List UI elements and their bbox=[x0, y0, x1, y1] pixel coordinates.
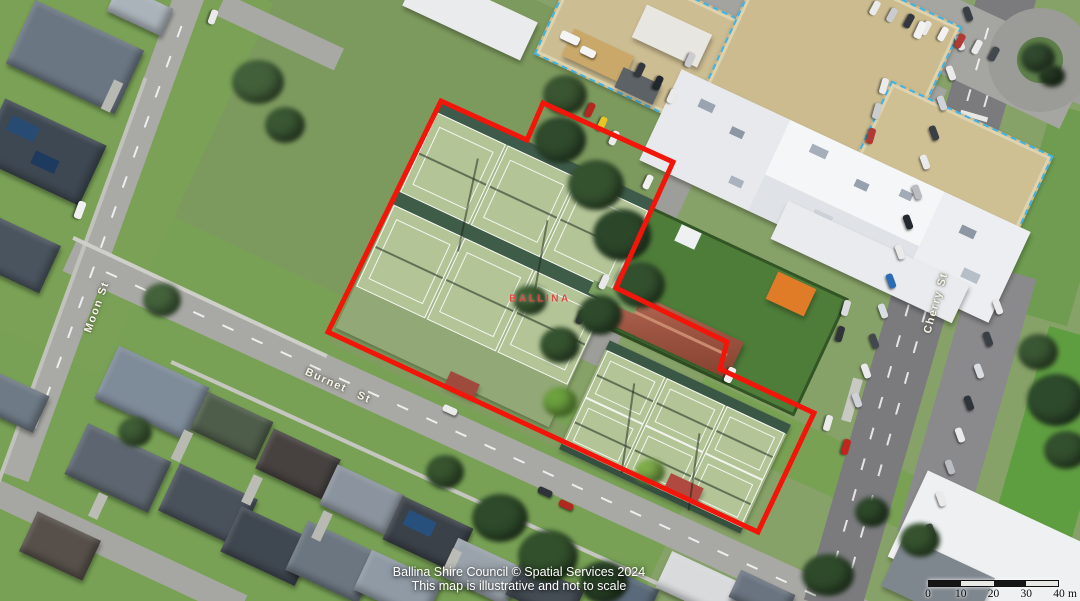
scale-tick-0: 0 bbox=[925, 588, 931, 600]
scale-tick-20: 20 bbox=[988, 588, 1000, 600]
tree bbox=[143, 283, 181, 317]
scale-bar: 0 10 20 30 40 m bbox=[928, 580, 1059, 601]
aerial-map: Moon St Burnet St Cherry St BALLINA Ball… bbox=[0, 0, 1080, 601]
scale-segment bbox=[1026, 581, 1058, 586]
tree bbox=[568, 160, 624, 210]
tree bbox=[802, 554, 854, 596]
tree bbox=[593, 209, 651, 261]
place-label-ballina: BALLINA bbox=[509, 294, 570, 305]
scale-segment bbox=[961, 581, 993, 586]
attribution-line-1: Ballina Shire Council © Spatial Services… bbox=[393, 565, 645, 579]
scale-tick-10: 10 bbox=[955, 588, 967, 600]
scale-unit: m bbox=[1068, 588, 1077, 600]
tree bbox=[265, 107, 305, 143]
tree bbox=[635, 459, 665, 485]
tree bbox=[543, 387, 577, 417]
attribution-line-2: This map is illustrative and not to scal… bbox=[412, 579, 627, 593]
scale-bar-segments bbox=[928, 580, 1059, 587]
scale-bar-ticks: 0 10 20 30 40 m bbox=[928, 588, 1059, 601]
tree bbox=[1044, 431, 1080, 469]
tree bbox=[472, 494, 528, 542]
tree bbox=[578, 295, 622, 335]
tree bbox=[615, 262, 665, 308]
scale-tick-40: 40 bbox=[1053, 588, 1065, 600]
tree bbox=[426, 455, 464, 489]
car bbox=[822, 414, 833, 431]
solar-panels bbox=[30, 150, 59, 174]
tree bbox=[540, 327, 580, 363]
tree bbox=[534, 117, 586, 163]
scale-segment bbox=[994, 581, 1026, 586]
tree bbox=[1027, 374, 1080, 426]
tree bbox=[1018, 334, 1058, 370]
tree bbox=[118, 417, 152, 447]
solar-panels bbox=[403, 510, 437, 537]
tree bbox=[855, 497, 889, 527]
car bbox=[834, 325, 845, 342]
tree bbox=[232, 60, 284, 104]
scale-segment bbox=[929, 581, 961, 586]
tree bbox=[900, 523, 940, 557]
tree bbox=[1039, 65, 1065, 87]
scale-tick-30: 30 bbox=[1021, 588, 1033, 600]
solar-panels bbox=[6, 115, 40, 142]
tree bbox=[543, 75, 587, 115]
